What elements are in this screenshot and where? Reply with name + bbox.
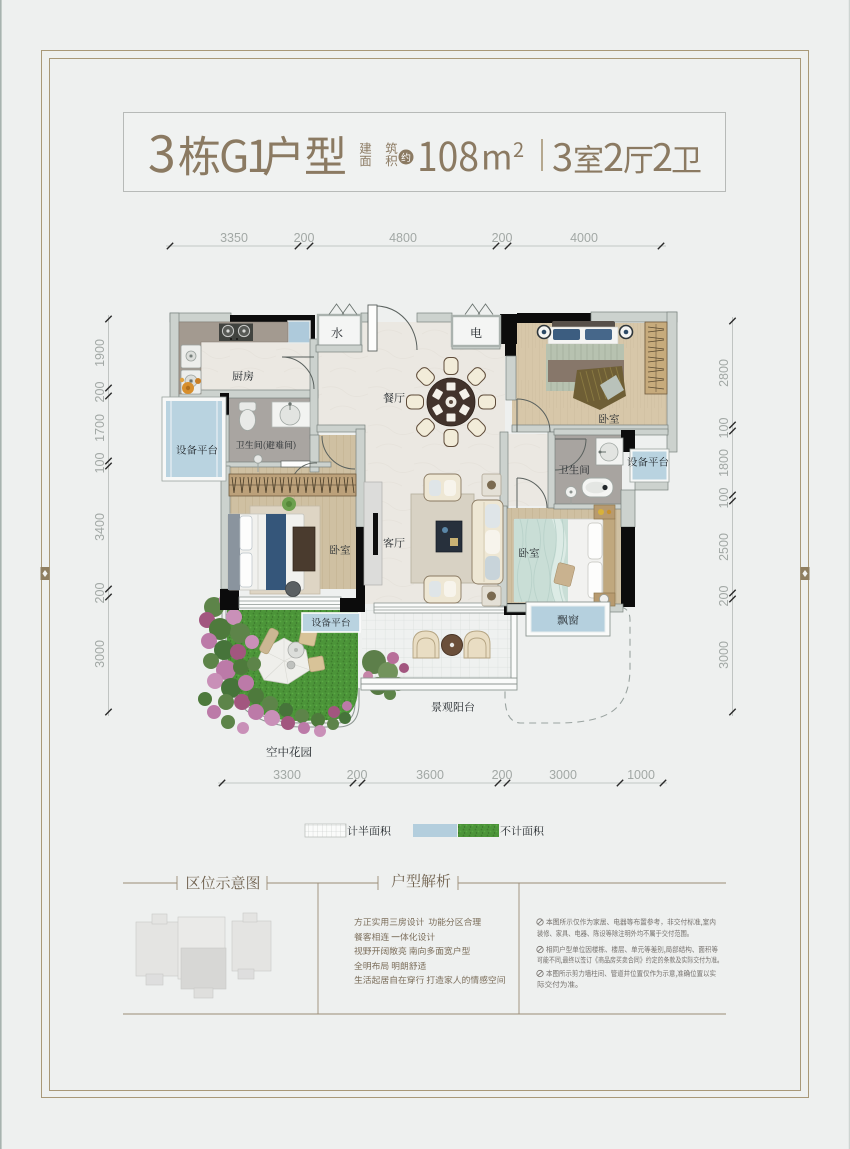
svg-text:2800: 2800 — [717, 359, 731, 387]
svg-text:1800: 1800 — [717, 449, 731, 477]
svg-text:4000: 4000 — [570, 231, 598, 245]
svg-text:3300: 3300 — [273, 768, 301, 782]
svg-text:3000: 3000 — [717, 641, 731, 669]
svg-text:3350: 3350 — [220, 231, 248, 245]
svg-text:200: 200 — [347, 768, 368, 782]
svg-text:200: 200 — [492, 231, 513, 245]
svg-text:1000: 1000 — [627, 768, 655, 782]
svg-text:200: 200 — [717, 586, 731, 607]
svg-text:3000: 3000 — [549, 768, 577, 782]
svg-text:3400: 3400 — [93, 513, 107, 541]
svg-text:200: 200 — [294, 231, 315, 245]
svg-text:200: 200 — [93, 382, 107, 403]
svg-text:100: 100 — [717, 418, 731, 439]
svg-text:1900: 1900 — [93, 339, 107, 367]
svg-text:100: 100 — [93, 453, 107, 474]
svg-text:200: 200 — [492, 768, 513, 782]
svg-text:100: 100 — [717, 488, 731, 509]
svg-text:3600: 3600 — [416, 768, 444, 782]
svg-text:3000: 3000 — [93, 640, 107, 668]
svg-text:2500: 2500 — [717, 533, 731, 561]
svg-text:4800: 4800 — [389, 231, 417, 245]
svg-text:200: 200 — [93, 583, 107, 604]
svg-text:1700: 1700 — [93, 414, 107, 442]
